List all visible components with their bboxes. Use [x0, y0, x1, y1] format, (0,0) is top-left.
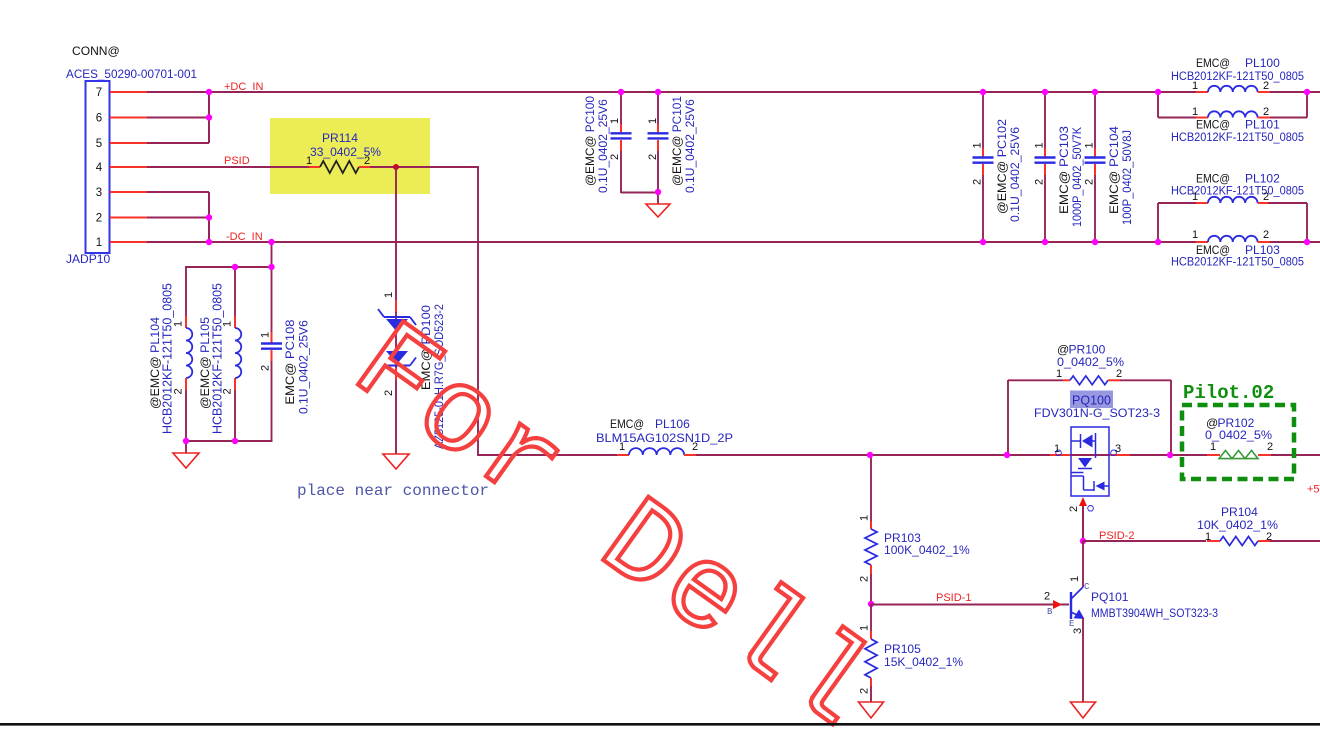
svg-text:1: 1 — [1069, 576, 1081, 582]
svg-text:0.1U_0402_25V6: 0.1U_0402_25V6 — [297, 320, 311, 414]
svg-text:2: 2 — [1263, 80, 1269, 92]
svg-text:@EMC@ PC101: @EMC@ PC101 — [670, 96, 684, 186]
svg-text:2: 2 — [222, 388, 234, 394]
svg-text:HCB2012KF-121T50_0805: HCB2012KF-121T50_0805 — [1171, 255, 1304, 269]
svg-text:PQ101: PQ101 — [1091, 590, 1129, 604]
svg-text:EMC@ PC103: EMC@ PC103 — [1057, 126, 1071, 214]
svg-text:2: 2 — [1034, 179, 1046, 185]
svg-text:1: 1 — [173, 321, 185, 327]
svg-text:2: 2 — [1116, 368, 1122, 380]
svg-text:2: 2 — [972, 179, 984, 185]
svg-text:0_0402_5%: 0_0402_5% — [1205, 428, 1272, 442]
svg-text:1: 1 — [1192, 229, 1198, 241]
svg-text:10K_0402_1%: 10K_0402_1% — [1197, 518, 1278, 532]
svg-text:2: 2 — [1267, 441, 1273, 453]
svg-text:2: 2 — [692, 441, 698, 453]
svg-text:PR104: PR104 — [1221, 505, 1258, 519]
svg-text:2: 2 — [173, 388, 185, 394]
svg-text:2: 2 — [1084, 179, 1096, 185]
svg-text:2: 2 — [1044, 591, 1050, 603]
svg-text:1: 1 — [1084, 142, 1096, 148]
svg-text:+5V: +5V — [1307, 484, 1320, 496]
svg-text:Pilot.02: Pilot.02 — [1183, 382, 1274, 404]
svg-text:HCB2012KF-121T50_0805: HCB2012KF-121T50_0805 — [211, 283, 225, 434]
svg-text:15K_0402_1%: 15K_0402_1% — [884, 655, 963, 669]
svg-text:PSID: PSID — [224, 155, 250, 167]
svg-text:1: 1 — [859, 515, 871, 521]
svg-text:4: 4 — [96, 162, 103, 174]
svg-text:EMC@ PC104: EMC@ PC104 — [1107, 126, 1121, 214]
svg-text:33_0402_5%: 33_0402_5% — [310, 145, 381, 159]
svg-text:2: 2 — [1263, 106, 1269, 118]
svg-text:100P_0402_50V8J: 100P_0402_50V8J — [1120, 130, 1134, 225]
svg-text:BLM15AG102SN1D_2P: BLM15AG102SN1D_2P — [596, 431, 733, 445]
svg-text:EMC@: EMC@ — [1196, 56, 1230, 70]
svg-text:2: 2 — [1266, 531, 1272, 543]
svg-text:HCB2012KF-121T50_0805: HCB2012KF-121T50_0805 — [161, 283, 175, 434]
svg-text:EMC@: EMC@ — [610, 417, 644, 431]
svg-text:2: 2 — [1068, 506, 1080, 512]
svg-text:2: 2 — [1263, 229, 1269, 241]
svg-text:2: 2 — [364, 155, 370, 167]
svg-text:1: 1 — [609, 118, 621, 124]
svg-text:@EMC@ PC102: @EMC@ PC102 — [995, 119, 1009, 214]
svg-text:JADP10: JADP10 — [66, 252, 110, 266]
svg-text:E: E — [1069, 619, 1074, 629]
svg-text:HCB2012KF-121T50_0805: HCB2012KF-121T50_0805 — [1171, 130, 1304, 144]
svg-text:1: 1 — [1205, 531, 1211, 543]
svg-text:1: 1 — [647, 118, 659, 124]
svg-text:CONN@: CONN@ — [72, 44, 120, 58]
svg-text:1: 1 — [1210, 441, 1216, 453]
svg-text:2: 2 — [609, 154, 621, 160]
svg-text:0_0402_5%: 0_0402_5% — [1057, 355, 1124, 369]
svg-text:1: 1 — [306, 155, 312, 167]
svg-text:7: 7 — [96, 87, 102, 99]
svg-text:PL106: PL106 — [655, 417, 690, 431]
svg-text:1: 1 — [1054, 443, 1060, 455]
svg-text:PSID-1: PSID-1 — [936, 592, 971, 604]
svg-text:1: 1 — [972, 142, 984, 148]
svg-text:2: 2 — [260, 365, 272, 371]
svg-text:C: C — [1084, 582, 1090, 592]
svg-text:3: 3 — [96, 187, 102, 199]
svg-text:1: 1 — [1192, 106, 1198, 118]
svg-text:PL100: PL100 — [1245, 56, 1280, 70]
svg-text:2: 2 — [96, 213, 102, 225]
svg-text:2: 2 — [859, 576, 871, 582]
svg-text:0.1U_0402_25V6: 0.1U_0402_25V6 — [683, 99, 697, 193]
svg-text:1: 1 — [222, 321, 234, 327]
svg-text:6: 6 — [96, 113, 102, 125]
svg-text:1: 1 — [383, 292, 395, 298]
svg-text:MMBT3904WH_SOT323-3: MMBT3904WH_SOT323-3 — [1091, 606, 1218, 620]
svg-text:1: 1 — [1056, 368, 1062, 380]
svg-text:0.1U_0402_25V6: 0.1U_0402_25V6 — [596, 99, 610, 193]
svg-text:1: 1 — [1192, 80, 1198, 92]
svg-text:PR114: PR114 — [322, 131, 358, 145]
svg-text:2: 2 — [647, 154, 659, 160]
svg-text:FDV301N-G_SOT23-3: FDV301N-G_SOT23-3 — [1034, 406, 1160, 420]
svg-text:1: 1 — [619, 441, 625, 453]
svg-text:2: 2 — [1263, 191, 1269, 203]
svg-text:ACES_50290-00701-001: ACES_50290-00701-001 — [66, 67, 197, 81]
svg-text:@EMC@ PC100: @EMC@ PC100 — [583, 96, 597, 186]
svg-text:HCB2012KF-121T50_0805: HCB2012KF-121T50_0805 — [1171, 69, 1304, 83]
svg-text:1: 1 — [260, 332, 272, 338]
svg-text:B: B — [1047, 607, 1053, 617]
svg-text:1: 1 — [1034, 142, 1046, 148]
svg-text:100K_0402_1%: 100K_0402_1% — [884, 543, 970, 557]
svg-text:1000P_0402_50V7K: 1000P_0402_50V7K — [1070, 127, 1084, 227]
svg-text:0.1U_0402_25V6: 0.1U_0402_25V6 — [1008, 127, 1022, 222]
svg-text:1: 1 — [1192, 191, 1198, 203]
svg-text:1: 1 — [96, 237, 102, 249]
svg-text:5: 5 — [96, 138, 102, 150]
svg-text:HCB2012KF-121T50_0805: HCB2012KF-121T50_0805 — [1171, 184, 1304, 198]
svg-text:3: 3 — [1115, 443, 1121, 455]
svg-text:EMC@ PC108: EMC@ PC108 — [283, 319, 297, 404]
